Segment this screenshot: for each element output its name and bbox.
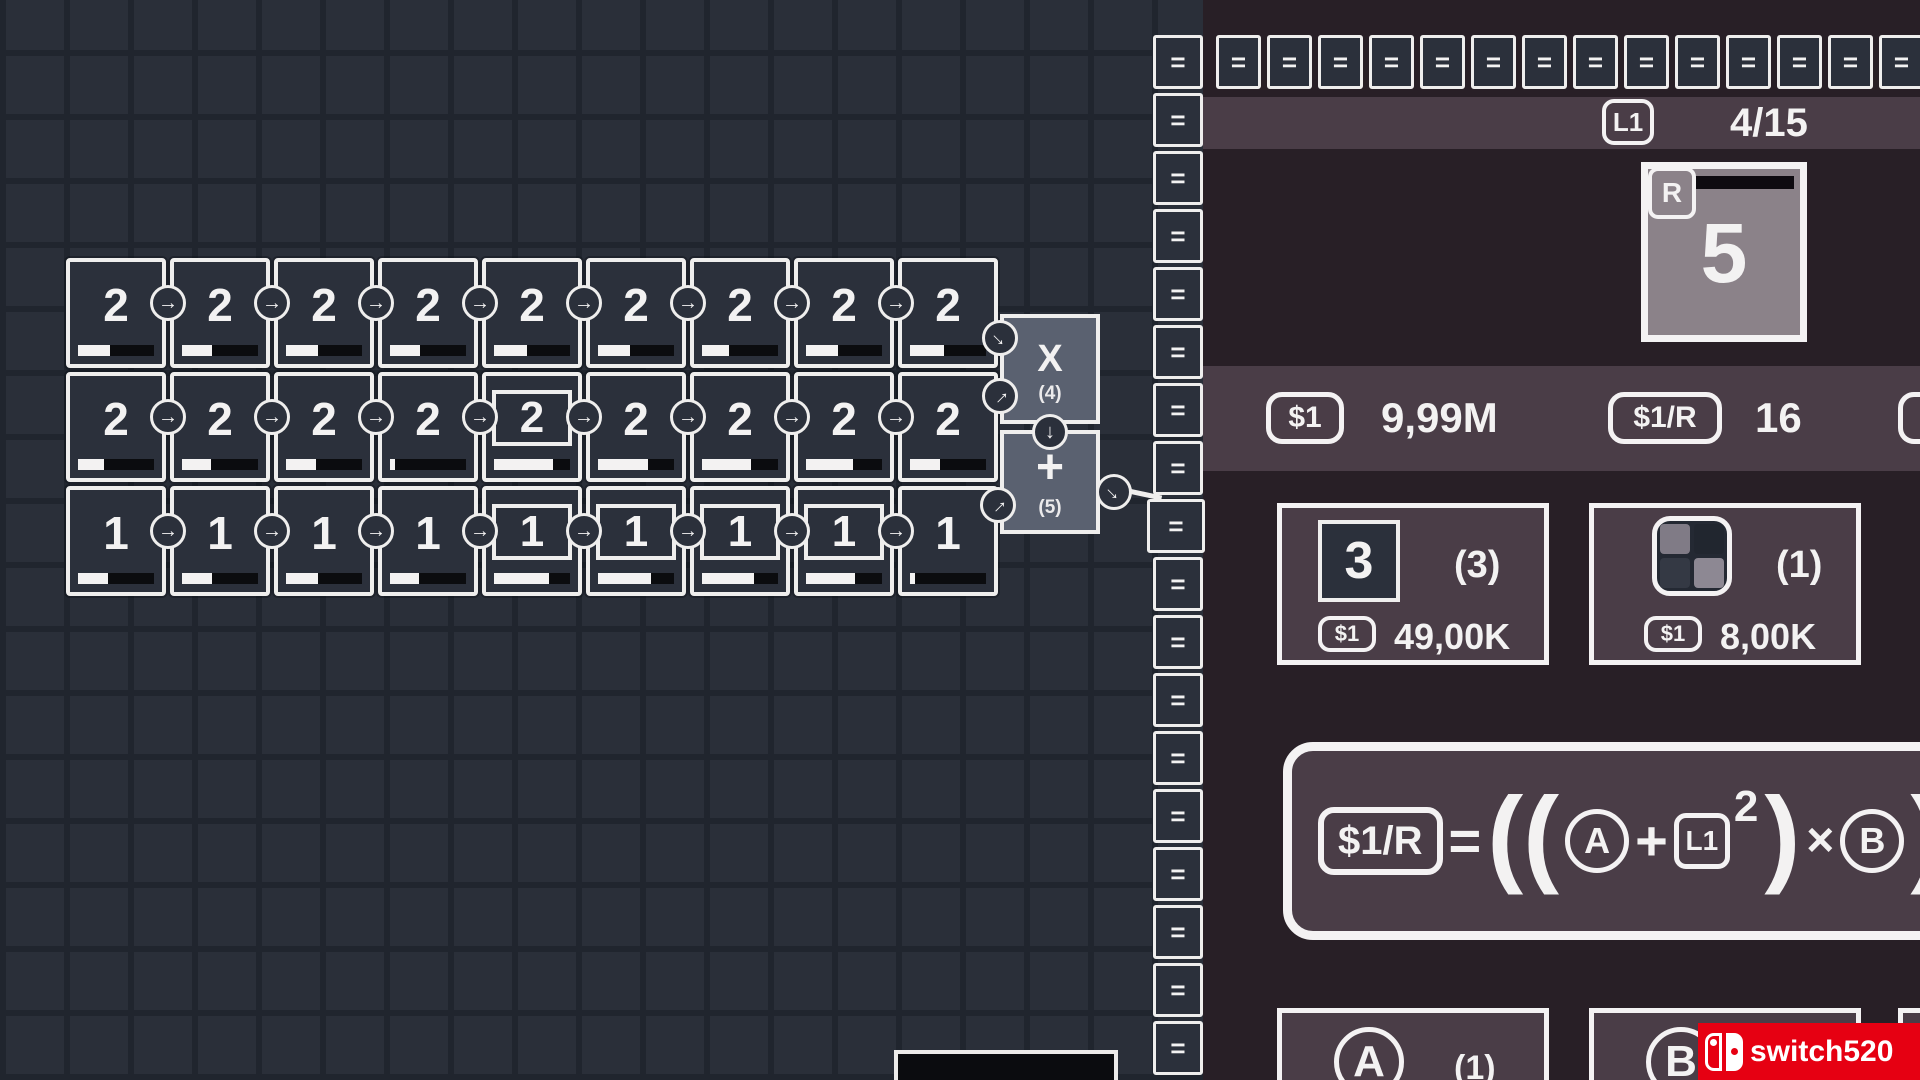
shop-item1-price-badge: $1: [1318, 616, 1376, 652]
tile-progress-fill: [182, 345, 212, 356]
equals-tile: =: [1153, 1021, 1203, 1075]
equals-tile: =: [1522, 35, 1567, 89]
arrow-right-icon: →: [878, 399, 914, 435]
variable-a-icon: A: [1565, 809, 1629, 873]
formula-trailing-paren: ): [1910, 792, 1920, 878]
arrow-down-icon: ↓: [1032, 414, 1068, 450]
shop-item-number-tile[interactable]: 3 (3) $1 49,00K: [1277, 503, 1549, 665]
stats-row: $1 9,99M $1/R 16: [1203, 366, 1920, 471]
tile-value: 1: [278, 510, 370, 556]
equals-tile: =: [1153, 93, 1203, 147]
board-tile[interactable]: 2: [378, 258, 478, 368]
board-tile[interactable]: 2: [482, 372, 582, 482]
tile-progress-fill: [806, 345, 838, 356]
tile-progress-track: [702, 345, 778, 356]
formula-level-label: L1: [1686, 825, 1719, 857]
arrow-right-icon: →: [254, 513, 290, 549]
tile-progress-fill: [286, 459, 316, 470]
formula-exponent: 2: [1734, 785, 1758, 829]
equals-tile: =: [1153, 209, 1203, 263]
tile-value: 2: [70, 282, 162, 328]
board-tile[interactable]: 2: [66, 258, 166, 368]
equals-tile: =: [1153, 963, 1203, 1017]
board-tile[interactable]: 2: [482, 258, 582, 368]
tile-value: 2: [382, 396, 474, 442]
multiply-label: X: [1004, 340, 1096, 378]
tile-progress-track: [390, 459, 466, 470]
game-screen: 22→2→2→2→2→2→2→2→22→2→2→2→2→2→2→2→11→1→1…: [0, 0, 1920, 1080]
tile-value: 1: [902, 510, 994, 556]
board-tile[interactable]: 2: [274, 258, 374, 368]
tile-progress-track: [286, 459, 362, 470]
tile-progress-fill: [78, 459, 104, 470]
tile-value: 2: [382, 282, 474, 328]
equals-tile: =: [1153, 557, 1203, 611]
arrow-right-icon: →: [878, 285, 914, 321]
tile-value-selected: 1: [700, 504, 780, 560]
variable-a-icon: A: [1334, 1027, 1404, 1080]
rate-badge: $1/R: [1608, 392, 1722, 444]
board-tile[interactable]: 2: [66, 372, 166, 482]
arrow-right-icon: →: [878, 513, 914, 549]
tile-value: 2: [278, 396, 370, 442]
board-tile[interactable]: 2: [170, 372, 270, 482]
grid-quadrant: [1660, 558, 1690, 588]
card-a-symbol: A: [1353, 1037, 1385, 1080]
equals-tile: =: [1828, 35, 1873, 89]
equals-tile: =: [1153, 847, 1203, 901]
tile-progress-fill: [598, 459, 648, 470]
equals-tile: =: [1726, 35, 1771, 89]
arrow-right-icon: →: [670, 513, 706, 549]
arrow-right-icon: →: [566, 285, 602, 321]
tile-progress-fill: [598, 573, 651, 584]
equals-tile: =: [1153, 325, 1203, 379]
tile-progress-track: [910, 573, 986, 584]
add-count: (5): [1004, 498, 1096, 517]
formula-plus: +: [1635, 813, 1668, 869]
equals-tile: =: [1153, 441, 1203, 495]
tile-progress-track: [390, 573, 466, 584]
arrow-right-icon: →: [774, 285, 810, 321]
tile-progress-fill: [78, 573, 108, 584]
tile-progress-track: [182, 459, 258, 470]
tile-progress-track: [182, 345, 258, 356]
tile-progress-track: [806, 345, 882, 356]
arrow-right-icon: →: [670, 285, 706, 321]
tile-progress-fill: [286, 345, 318, 356]
equals-tile: =: [1573, 35, 1618, 89]
grid-quadrant: [1660, 524, 1690, 554]
equals-tile: =: [1267, 35, 1312, 89]
equals-tile: =: [1153, 673, 1203, 727]
arrow-right-icon: →: [254, 399, 290, 435]
tile-progress-fill: [702, 459, 751, 470]
board-tile[interactable]: 2: [378, 372, 478, 482]
formula-box: $1/R = (( A + L1 2 ) × B ): [1283, 742, 1920, 940]
equals-tile: =: [1153, 615, 1203, 669]
tile-progress-track: [702, 459, 778, 470]
tile-progress-track: [598, 573, 674, 584]
arrow-right-icon: →: [566, 399, 602, 435]
tile-value: 1: [382, 510, 474, 556]
tile-value: 1: [174, 510, 266, 556]
tile-value-selected: 1: [596, 504, 676, 560]
equals-tile: =: [1153, 267, 1203, 321]
money-badge-label: $1: [1288, 401, 1321, 435]
equals-tile: =: [1153, 789, 1203, 843]
board-tile[interactable]: 1: [274, 486, 374, 596]
tile-progress-track: [286, 345, 362, 356]
arrow-right-icon: →: [150, 513, 186, 549]
tile-value-selected: 2: [492, 390, 572, 446]
equals-tile: =: [1675, 35, 1720, 89]
tile-progress-fill: [390, 345, 420, 356]
tile-progress-track: [910, 459, 986, 470]
tile-value: 2: [694, 282, 786, 328]
switch-logo-icon: [1705, 1031, 1745, 1073]
board-tile[interactable]: 1: [378, 486, 478, 596]
equals-tile: =: [1777, 35, 1822, 89]
grid-2x2-icon: [1652, 516, 1732, 596]
tile-progress-fill: [702, 573, 754, 584]
shop-item1-count: (3): [1454, 546, 1500, 584]
tile-progress-fill: [702, 345, 729, 356]
equals-tile: =: [1216, 35, 1261, 89]
tile-progress-track: [598, 345, 674, 356]
board-tile[interactable]: 1: [690, 486, 790, 596]
tile-progress-track: [806, 573, 882, 584]
arrow-right-icon: →: [774, 513, 810, 549]
tile-value: 1: [70, 510, 162, 556]
rate-badge-label: $1/R: [1633, 401, 1696, 435]
tile-value: 2: [590, 396, 682, 442]
equals-tile: =: [1153, 35, 1203, 89]
tile-value: 2: [798, 396, 890, 442]
equals-tile: =: [1471, 35, 1516, 89]
result-badge: R: [1648, 167, 1696, 219]
tile-progress-track: [494, 459, 570, 470]
board-tile[interactable]: 2: [794, 372, 894, 482]
tile-value: 2: [902, 396, 994, 442]
tile-progress-fill: [910, 459, 940, 470]
shop-item1-price: 49,00K: [1394, 616, 1510, 658]
equals-tile: =: [1420, 35, 1465, 89]
tile-progress-track: [390, 345, 466, 356]
equals-tile: =: [1153, 383, 1203, 437]
tile-progress-fill: [910, 573, 915, 584]
shop-item2-count: (1): [1776, 546, 1822, 584]
result-card[interactable]: R 5: [1641, 162, 1807, 342]
tile-progress-fill: [390, 459, 395, 470]
board-tile[interactable]: 1: [170, 486, 270, 596]
level-badge: L1: [1602, 99, 1654, 145]
board-tile[interactable]: 1: [794, 486, 894, 596]
watermark-text: switch520: [1750, 1035, 1893, 1069]
equals-tile: =: [1624, 35, 1669, 89]
arrow-right-icon: →: [462, 513, 498, 549]
tile-progress-track: [494, 573, 570, 584]
arrow-right-icon: →: [462, 399, 498, 435]
tile-value-selected: 1: [804, 504, 884, 560]
shop-item2-price-badge: $1: [1644, 616, 1702, 652]
arrow-right-icon: →: [358, 285, 394, 321]
level-bar: L1 4/15: [1203, 97, 1920, 149]
tile-progress-fill: [182, 459, 211, 470]
board-tile[interactable]: 2: [586, 372, 686, 482]
tile-progress-fill: [806, 459, 853, 470]
equals-tile: =: [1369, 35, 1414, 89]
board-tile[interactable]: 2: [898, 258, 998, 368]
rate-value: 16: [1755, 394, 1802, 442]
add-label: +: [1004, 444, 1096, 492]
tile-value: 2: [694, 396, 786, 442]
tile-progress-track: [78, 459, 154, 470]
clipped-stat-badge: [1898, 392, 1920, 444]
tile-progress-fill: [494, 573, 549, 584]
partial-card-bottom-edge: [894, 1050, 1118, 1080]
tile-progress-fill: [806, 573, 855, 584]
tile-progress-track: [598, 459, 674, 470]
tile-progress-fill: [494, 345, 527, 356]
shop-item-grid[interactable]: (1) $1 8,00K: [1589, 503, 1861, 665]
card-a-count: (1): [1454, 1051, 1496, 1080]
board-tile[interactable]: 2: [690, 372, 790, 482]
tile-value: 2: [174, 396, 266, 442]
arrow-right-icon: →: [358, 513, 394, 549]
tile-progress-fill: [390, 573, 419, 584]
result-badge-label: R: [1662, 177, 1682, 209]
level-progress: 4/15: [1730, 101, 1808, 146]
board-tile[interactable]: 2: [794, 258, 894, 368]
price-badge-label: $1: [1661, 621, 1685, 647]
tile-progress-track: [286, 573, 362, 584]
tile-value: 2: [902, 282, 994, 328]
board-tile[interactable]: 2: [690, 258, 790, 368]
tile-progress-fill: [78, 345, 110, 356]
arrow-right-icon: →: [358, 399, 394, 435]
board-tile[interactable]: 1: [482, 486, 582, 596]
tile-value: 2: [486, 282, 578, 328]
variable-a-card[interactable]: A (1): [1277, 1008, 1549, 1080]
arrow-right-icon: →: [150, 399, 186, 435]
card-b-symbol: B: [1665, 1037, 1697, 1080]
formula-close-paren: ): [1764, 792, 1800, 878]
variable-b-label: B: [1859, 820, 1885, 862]
grid-quadrant: [1694, 524, 1724, 554]
tile-progress-track: [78, 573, 154, 584]
tile-value: 2: [278, 282, 370, 328]
arrow-right-icon: →: [566, 513, 602, 549]
board-tile[interactable]: 1: [66, 486, 166, 596]
formula-lhs-badge: $1/R: [1318, 807, 1443, 875]
result-value: 5: [1648, 211, 1800, 295]
money-value: 9,99M: [1381, 394, 1498, 442]
variable-b-icon: B: [1840, 809, 1904, 873]
grid-quadrant: [1694, 558, 1724, 588]
shop-number-tile-icon: 3: [1318, 520, 1400, 602]
variable-a-label: A: [1584, 820, 1610, 862]
shop-item2-price: 8,00K: [1720, 616, 1816, 658]
equals-tile: =: [1153, 905, 1203, 959]
formula-times: ×: [1806, 817, 1834, 865]
board-tile[interactable]: 2: [586, 258, 686, 368]
tile-progress-track: [702, 573, 778, 584]
equals-tile: =: [1147, 499, 1205, 553]
equals-tile: =: [1153, 151, 1203, 205]
formula-level-badge: L1: [1674, 813, 1730, 869]
tile-progress-track: [494, 345, 570, 356]
board-tile[interactable]: 2: [170, 258, 270, 368]
tile-progress-fill: [182, 573, 212, 584]
equals-tile: =: [1879, 35, 1920, 89]
formula-equals: =: [1449, 813, 1482, 869]
price-badge-label: $1: [1335, 621, 1359, 647]
shop-tile-value: 3: [1345, 531, 1374, 591]
formula-open-parens: ((: [1487, 792, 1559, 878]
tile-progress-fill: [286, 573, 318, 584]
tile-progress-fill: [494, 459, 553, 470]
tile-progress-track: [910, 345, 986, 356]
tile-value-selected: 1: [492, 504, 572, 560]
board-tile[interactable]: 1: [586, 486, 686, 596]
level-badge-label: L1: [1613, 107, 1643, 138]
equals-tile: =: [1153, 731, 1203, 785]
arrow-right-icon: →: [150, 285, 186, 321]
tile-value: 2: [70, 396, 162, 442]
tile-progress-fill: [910, 345, 944, 356]
board-tile[interactable]: 2: [274, 372, 374, 482]
money-badge: $1: [1266, 392, 1344, 444]
arrow-right-icon: →: [670, 399, 706, 435]
arrow-right-icon: →: [774, 399, 810, 435]
tile-value: 2: [174, 282, 266, 328]
arrow-right-icon: →: [254, 285, 290, 321]
tile-value: 2: [590, 282, 682, 328]
tile-progress-fill: [598, 345, 630, 356]
tile-progress-track: [806, 459, 882, 470]
tile-progress-track: [182, 573, 258, 584]
watermark: switch520: [1698, 1023, 1920, 1080]
equals-tile: =: [1318, 35, 1363, 89]
tile-value: 2: [798, 282, 890, 328]
arrow-right-icon: →: [462, 285, 498, 321]
tile-progress-track: [78, 345, 154, 356]
